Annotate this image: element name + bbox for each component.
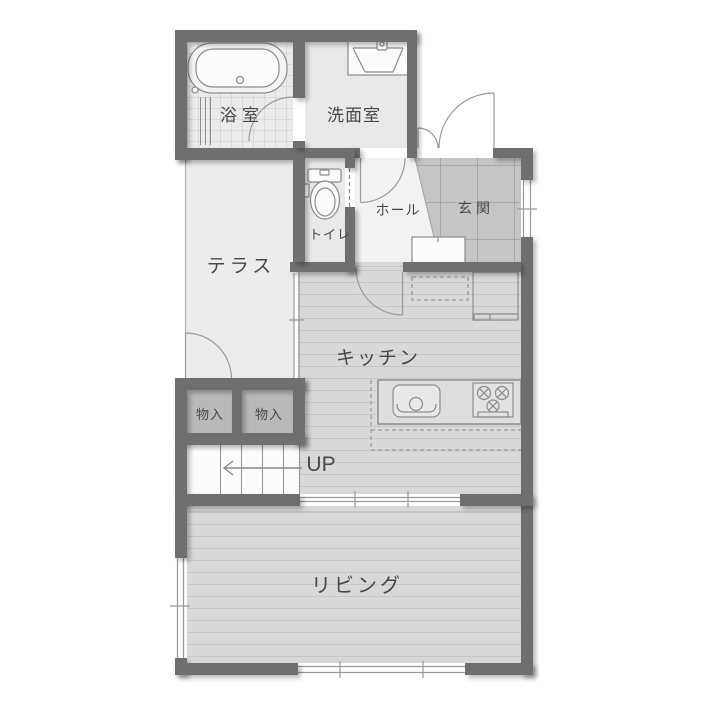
wall-segment [521, 158, 533, 180]
wall-segment [290, 262, 355, 272]
wall-segment [493, 148, 533, 158]
entrance-window [517, 180, 537, 237]
wall-segment [293, 160, 305, 262]
kitchen-living-opening [300, 491, 460, 507]
terrace-door-arc [186, 333, 232, 379]
wall-segment [175, 30, 417, 42]
washroom-sink-icon [348, 38, 408, 75]
wall-segment [345, 148, 355, 168]
toilet-icon [303, 169, 341, 219]
stairs-up-label: UP [306, 453, 335, 477]
washroom-door-arc [361, 158, 406, 203]
room-label-entrance: 玄関 [458, 198, 494, 218]
room-label-bathroom: 浴室 [220, 101, 264, 126]
kitchen-terrace-window [289, 273, 304, 378]
shoe-cabinet-icon [412, 237, 465, 263]
floor-plan: 浴室 洗面室 トイレ ホール 玄関 テラス キッチン 物入 物入 UP リビング [0, 0, 710, 710]
room-label-washroom: 洗面室 [327, 101, 381, 126]
stairs-treads [221, 445, 300, 494]
living-left-window [170, 558, 190, 662]
room-label-terrace: テラス [207, 251, 276, 278]
kitchen-door-arc [356, 268, 403, 315]
wall-segment [521, 237, 533, 675]
room-label-kitchen: キッチン [336, 343, 420, 370]
wall-segment [175, 663, 298, 675]
kitchen-cabinet-icon [473, 272, 518, 320]
wall-segment [175, 148, 305, 160]
entrance-child-door-arc [418, 128, 438, 148]
stove-icon [473, 383, 513, 417]
room-label-storage-right: 物入 [255, 404, 283, 423]
room-label-hall: ホール [376, 200, 421, 220]
room-label-toilet: トイレ [309, 224, 351, 243]
kitchen-counter [378, 380, 521, 424]
wall-segment [465, 663, 533, 675]
kitchen-sink-icon [393, 385, 440, 417]
wall-segment [175, 506, 187, 558]
wall-segment [175, 378, 305, 390]
wall-segment [175, 494, 300, 506]
refrigerator-space-outline [412, 277, 468, 300]
bathtub-icon [188, 43, 287, 145]
wall-segment [407, 30, 417, 158]
wall-segment [232, 390, 242, 433]
wall-segment [175, 433, 305, 445]
entrance-main-door-arc [439, 93, 494, 148]
room-label-living: リビング [311, 569, 403, 598]
wall-segment [175, 42, 187, 160]
wall-segment [293, 42, 305, 98]
wall-segment [403, 262, 521, 272]
wall-segment [293, 141, 305, 148]
room-label-storage-left: 物入 [196, 404, 224, 423]
living-bottom-window [298, 661, 465, 678]
wall-segment [460, 494, 533, 506]
